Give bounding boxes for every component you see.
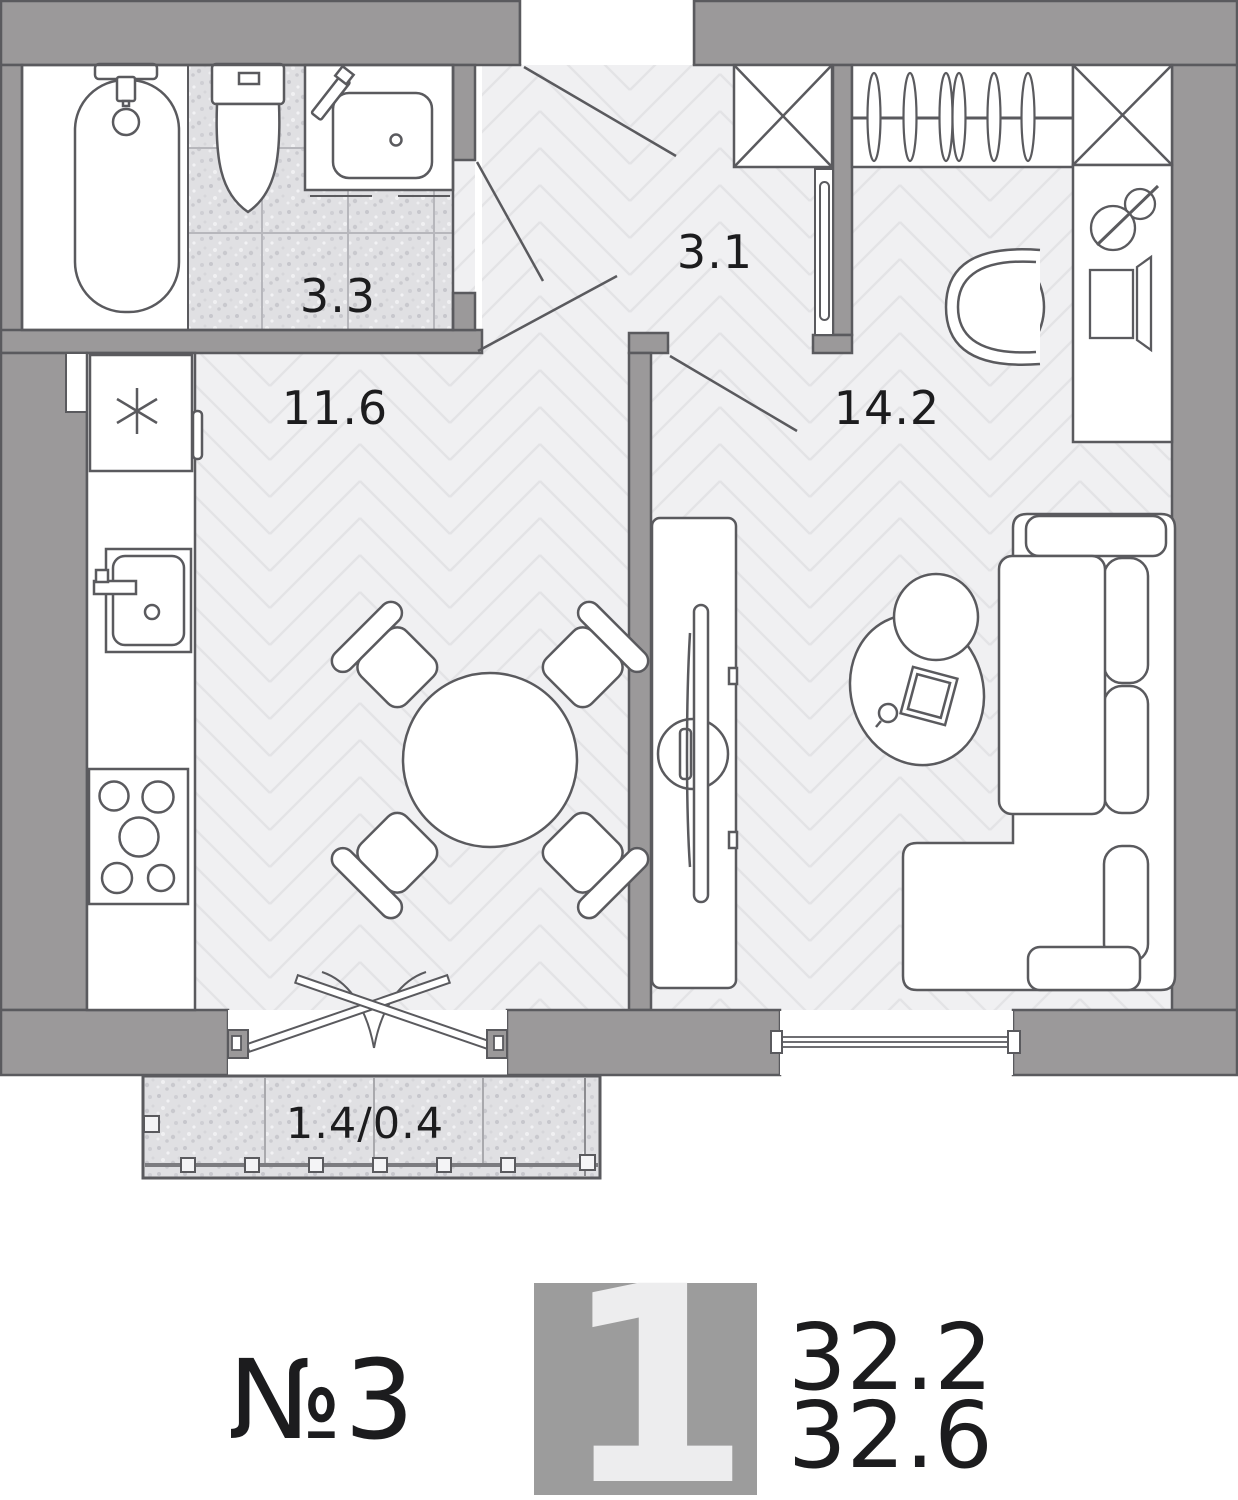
wall-bathroom-bottom <box>1 330 482 353</box>
wall-bottom-middle <box>507 1010 780 1075</box>
floor-plan-page: 3.3 3.1 11.6 14.2 1.4/0.4 №3 1 32.2 32.6 <box>0 0 1238 1500</box>
wall-left-lower <box>1 353 87 1010</box>
monitor-icon <box>1090 257 1151 350</box>
hallway-area-label: 3.1 <box>677 225 753 279</box>
sofa-armrest <box>1026 516 1166 556</box>
sofa-seat-cushion <box>999 556 1105 814</box>
sofa-back-cushion <box>1104 686 1148 813</box>
window-end-cap <box>1008 1031 1020 1053</box>
kitchen-floor <box>195 353 482 1010</box>
hinge-pin <box>494 1036 503 1050</box>
wall-top-right <box>694 1 1237 65</box>
bathroom-area-label: 3.3 <box>300 269 376 323</box>
sofa-corner-cushion <box>1028 947 1140 990</box>
wall-bottom-left <box>1 1010 228 1075</box>
wall-top-left <box>1 1 520 65</box>
console-notch <box>729 668 737 684</box>
bathtub-icon <box>75 64 179 312</box>
sliding-door-leaf <box>820 182 829 320</box>
legend: №3 1 32.2 32.6 <box>228 1230 993 1500</box>
stove-icon <box>89 769 188 904</box>
washbasin-icon <box>305 65 453 196</box>
living-room-area-label: 14.2 <box>834 381 940 435</box>
window <box>771 1011 1020 1075</box>
wall-left-upper <box>1 65 22 333</box>
wall-bottom-right <box>1013 1010 1237 1075</box>
cup-icon <box>879 704 897 722</box>
kitchen <box>87 353 202 1010</box>
balcony-area-label: 1.4/0.4 <box>286 1099 444 1149</box>
tv-icon <box>694 605 708 902</box>
tv-unit <box>652 518 737 988</box>
wall-hall-right-foot <box>813 335 852 353</box>
apartment-number: №3 <box>228 1336 416 1464</box>
fridge-handle <box>193 411 202 459</box>
desk-chair-icon <box>946 249 1044 364</box>
wall-hall-right <box>833 65 852 335</box>
kitchen-area-label: 11.6 <box>282 381 388 435</box>
room-count-numeral: 1 <box>562 1230 751 1500</box>
bathroom-doorway-floor <box>453 160 475 293</box>
wall-bathroom-right-upper <box>453 65 475 160</box>
kitchen-sink-icon <box>94 549 191 652</box>
wall-bathroom-right-lower <box>453 293 475 330</box>
partition-cap <box>629 333 668 353</box>
entrance-doorway <box>520 0 694 64</box>
window-end-cap <box>771 1031 782 1053</box>
floor-plan-drawing: 3.3 3.1 11.6 14.2 1.4/0.4 №3 1 32.2 32.6 <box>0 0 1238 1500</box>
tv-bracket <box>680 729 691 779</box>
sofa-back-cushion <box>1104 558 1148 683</box>
dining-table-icon <box>403 673 577 847</box>
partition-tv-wall <box>629 353 651 1010</box>
wall-right <box>1172 65 1237 1010</box>
total-area-value: 32.6 <box>788 1382 993 1489</box>
window-opening <box>780 1011 1013 1075</box>
sofa-back-cushion <box>1104 846 1148 962</box>
console-notch <box>729 832 737 848</box>
hinge-pin <box>232 1036 241 1050</box>
